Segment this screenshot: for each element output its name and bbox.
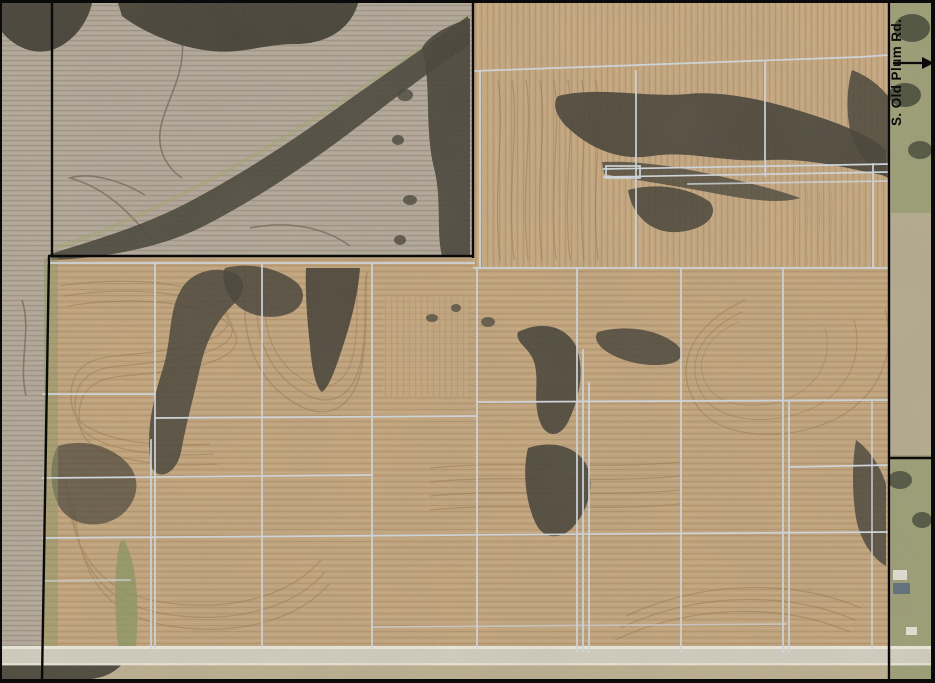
photo-grain [0, 0, 935, 683]
road-label: S. Old Plum Rd. [889, 19, 904, 126]
map-viewport[interactable]: S. Old Plum Rd. [0, 0, 935, 683]
aerial-map: S. Old Plum Rd. [0, 0, 935, 683]
